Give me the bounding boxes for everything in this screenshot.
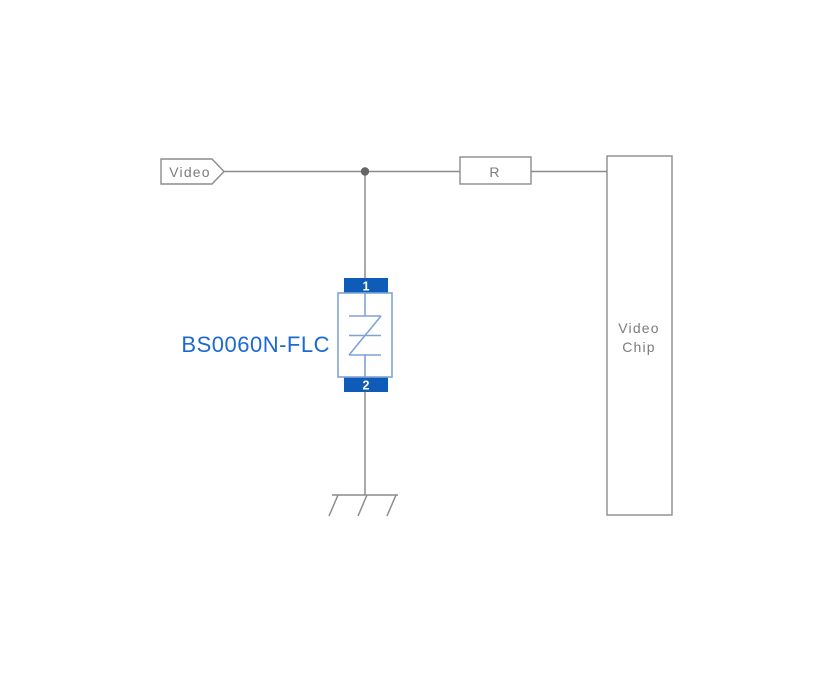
video-chip-label-line2: Chip	[622, 339, 656, 355]
net-label-video: Video	[161, 159, 224, 184]
tvs-component: 1 2	[338, 278, 392, 393]
net-flag-text: Video	[169, 164, 211, 180]
ground-symbol-strokes	[329, 495, 398, 516]
tvs-pin1-number: 1	[363, 280, 370, 294]
tvs-pin2-number: 2	[363, 379, 370, 393]
schematic-canvas: Video R Video Chip 1 2 BS0060N-FLC	[0, 0, 832, 675]
part-number-label: BS0060N-FLC	[181, 332, 330, 357]
resistor-label: R	[489, 164, 500, 180]
resistor: R	[460, 157, 531, 184]
ground-symbol	[329, 495, 398, 516]
esd-protection-application-diagram: Video R Video Chip 1 2 BS0060N-FLC	[0, 0, 832, 675]
video-chip-label-line1: Video	[618, 320, 660, 336]
video-chip-block: Video Chip	[607, 156, 672, 515]
junction-dot	[361, 167, 369, 175]
